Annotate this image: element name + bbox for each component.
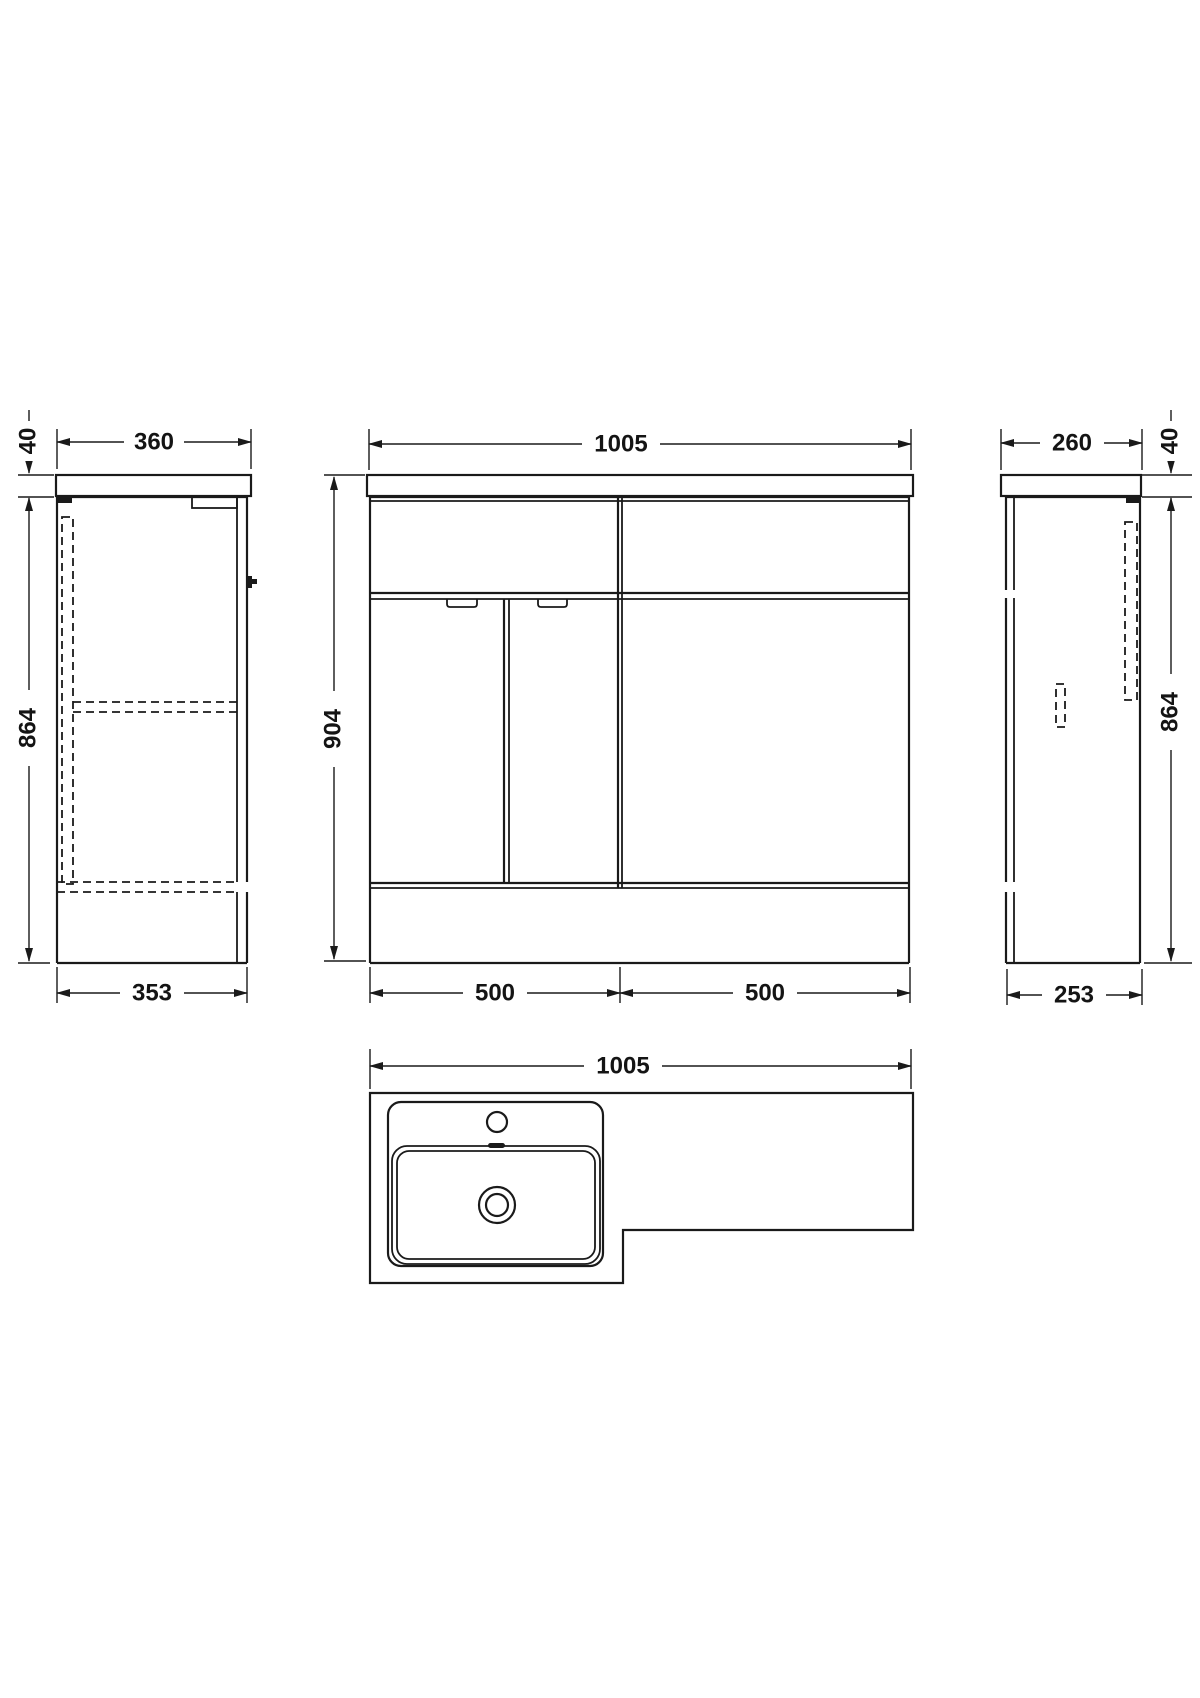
fixing-clip — [58, 498, 72, 503]
dim-front-height-label: 904 — [319, 708, 346, 749]
overflow-slot — [488, 1143, 505, 1148]
dim-left-top-width-label: 360 — [134, 428, 174, 455]
hidden-back-panel — [1125, 522, 1137, 700]
dim-left-height-label: 864 — [14, 707, 41, 748]
dim-right-thickness-label: 40 — [1156, 428, 1183, 455]
vanity-unit-dimension-drawing: 360 40 864 353 — [0, 0, 1200, 1698]
countertop-plan-outline — [370, 1093, 913, 1283]
countertop-section — [56, 475, 251, 496]
technical-drawing-canvas: 360 40 864 353 — [0, 0, 1200, 1698]
counter-bracket — [192, 497, 237, 508]
right-side-view: 260 40 864 253 — [1001, 410, 1192, 1008]
front-view: 1005 904 500 500 — [319, 429, 913, 1006]
dim-front-right-bay-label: 500 — [745, 979, 785, 1006]
dim-plan-width-label: 1005 — [596, 1052, 649, 1079]
countertop — [367, 475, 913, 496]
dim-front-left-bay-label: 500 — [475, 979, 515, 1006]
left-side-view: 360 40 864 353 — [14, 410, 257, 1006]
dim-right-base-depth-label: 253 — [1054, 981, 1094, 1008]
plan-view: 1005 — [370, 1049, 913, 1283]
door-handle-profile — [246, 576, 257, 588]
dim-left-thickness-label: 40 — [14, 428, 41, 455]
countertop-section — [1001, 475, 1141, 496]
hidden-back-panel — [62, 517, 73, 884]
door-handle-recess-right — [538, 599, 567, 607]
fixing-clip — [1126, 498, 1140, 503]
hidden-fixing-bracket — [1056, 684, 1065, 727]
dim-left-base-depth-label: 353 — [132, 979, 172, 1006]
dim-right-height-label: 864 — [1156, 691, 1183, 732]
door-handle-recess-left — [447, 599, 477, 607]
dim-front-width-label: 1005 — [594, 430, 647, 457]
dim-right-top-width-label: 260 — [1052, 429, 1092, 456]
